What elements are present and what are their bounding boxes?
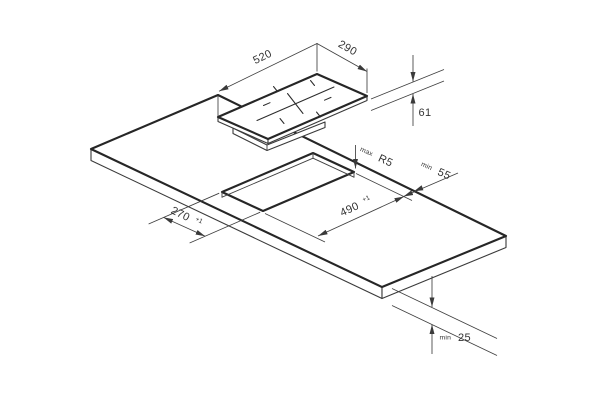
dim-min-25-label: min 25 — [440, 327, 472, 345]
arrowhead — [414, 185, 423, 191]
extension-line — [371, 70, 444, 100]
dim-290-label: 290 — [336, 38, 359, 58]
burner-tick — [274, 87, 278, 92]
dimension-61: 61 — [371, 55, 444, 126]
extension-line — [371, 81, 444, 111]
dim-max-r5-label: max R5 — [358, 139, 397, 170]
technical-drawing-page: 520 290 61 max R5 min 55 49 — [0, 0, 600, 400]
extension-line — [392, 289, 497, 339]
dim-min-55-label: min 55 — [419, 154, 455, 183]
cooktop-installation-diagram: 520 290 61 max R5 min 55 49 — [0, 0, 600, 400]
dim-61-label: 61 — [419, 107, 432, 119]
dim-520-label: 520 — [251, 48, 274, 67]
extension-line — [392, 306, 497, 356]
